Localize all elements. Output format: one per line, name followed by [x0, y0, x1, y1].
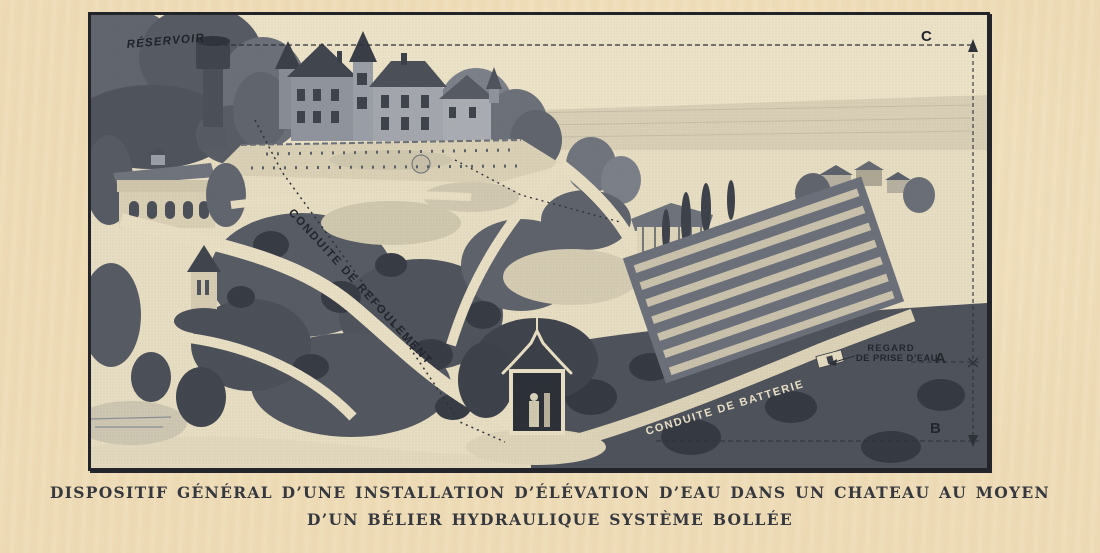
- halftone-texture: [91, 15, 987, 468]
- label-regard-line2: DE PRISE D’EAU: [856, 353, 938, 364]
- engraving-scene: RÉSERVOIR CONDUITE DE REFOULEMENT CONDUI…: [91, 15, 987, 468]
- figure-caption: DISPOSITIF GÉNÉRAL D’UNE INSTALLATION D’…: [0, 479, 1100, 533]
- scanned-page: RÉSERVOIR CONDUITE DE REFOULEMENT CONDUI…: [0, 0, 1100, 553]
- engraving-frame: RÉSERVOIR CONDUITE DE REFOULEMENT CONDUI…: [88, 12, 990, 471]
- caption-line-1: DISPOSITIF GÉNÉRAL D’UNE INSTALLATION D’…: [0, 479, 1100, 506]
- label-point-a: A: [935, 350, 946, 367]
- label-point-b: B: [930, 420, 941, 437]
- caption-line-2: D’UN BÉLIER HYDRAULIQUE SYSTÈME BOLLÉE: [0, 506, 1100, 533]
- label-point-c: C: [921, 28, 932, 45]
